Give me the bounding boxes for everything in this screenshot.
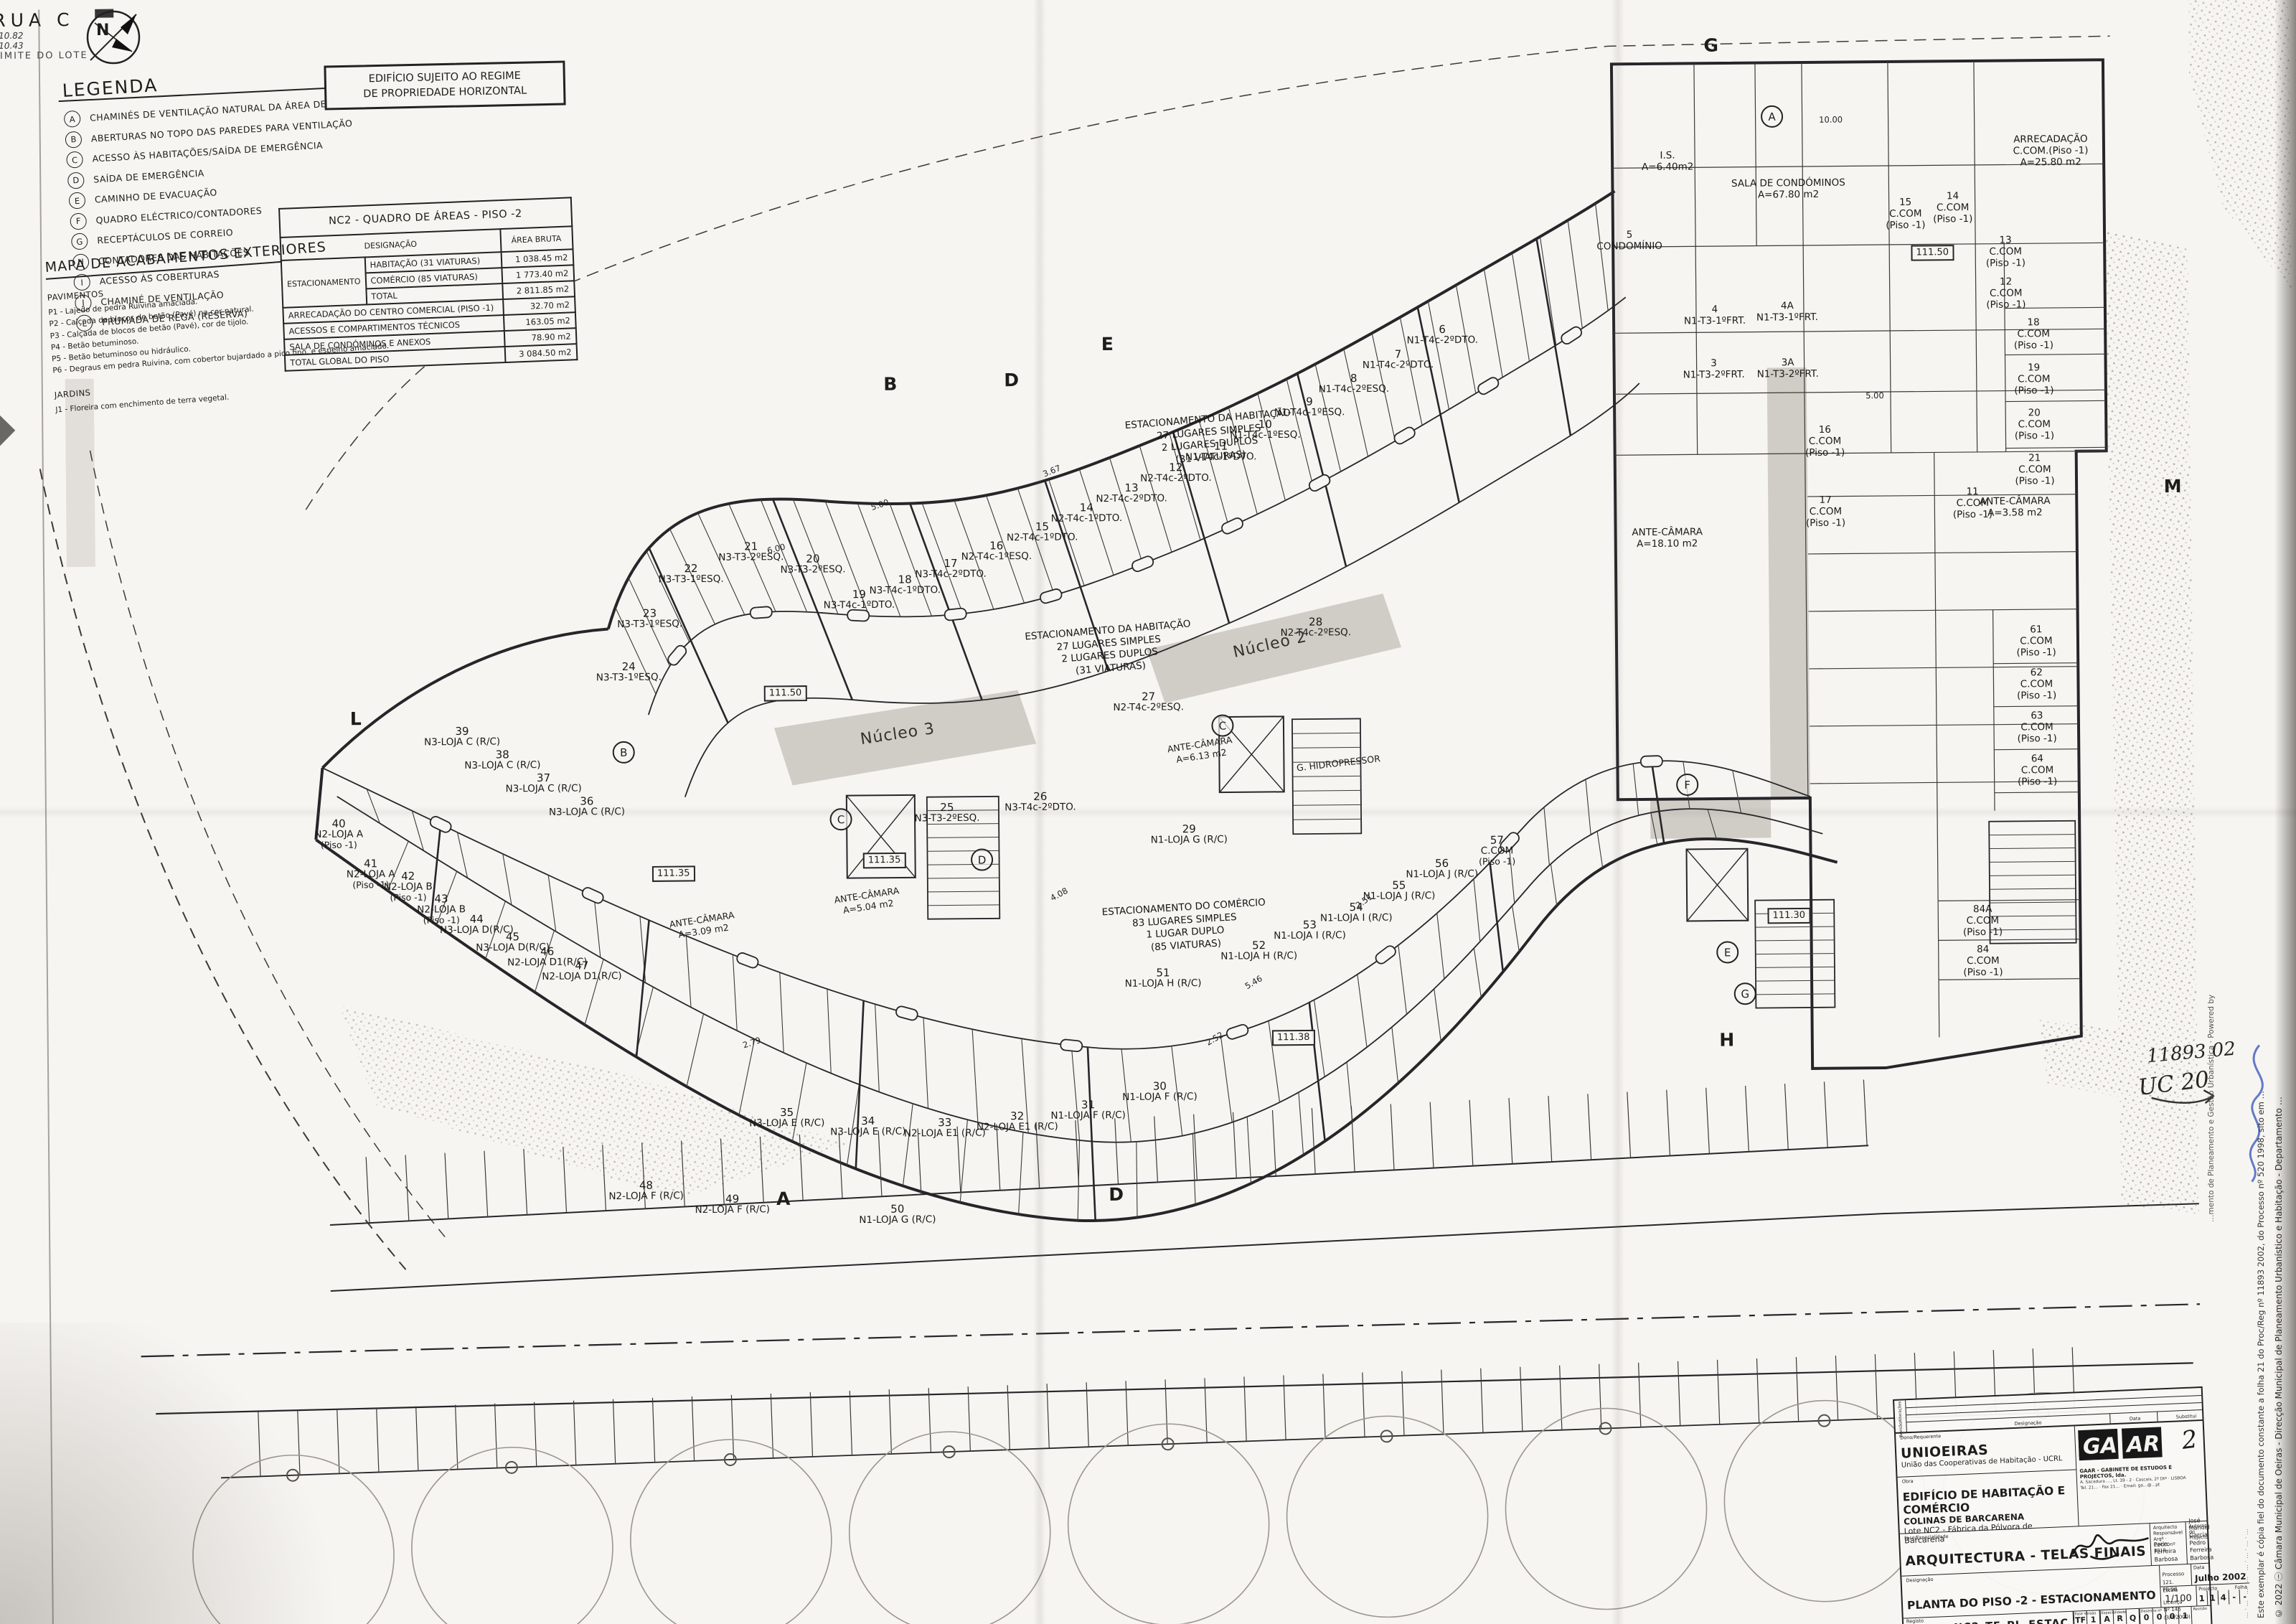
space-label: 6N1-T4c-2ºDTO. [1406, 324, 1478, 347]
space-code: N1-LOJA J (R/C) [1363, 891, 1436, 901]
room-label: 19C.COM(Piso -1) [2014, 362, 2054, 397]
scale-value: 1/100 [2165, 1593, 2192, 1605]
authors-cell: Autores do Projecto José Manuel Garcia P… [2185, 1521, 2212, 1564]
space-code: N2-LOJA F (R/C) [608, 1191, 684, 1201]
room-label-line: C.COM [2017, 679, 2056, 690]
revision-cell: Revisão [2191, 1606, 2211, 1624]
responsible-signature [2068, 1525, 2155, 1564]
space-label: 38N3-LOJA C (R/C) [464, 748, 540, 771]
responsible-label: Arquitecto Responsável [2153, 1524, 2183, 1536]
space-code: N1-T4c-2ºDTO. [1363, 360, 1434, 370]
room-label-line: C.COM [1986, 246, 2026, 258]
room-label-line: 63 [2017, 710, 2056, 722]
room-label-line: 14 [1933, 191, 1972, 202]
title-block: Alterações Revisão Designação Data Subst… [1893, 1386, 2213, 1624]
space-label: 29N1-LOJA G (R/C) [1151, 823, 1228, 846]
room-label: ARRECADAÇÃOC.COM.(Piso -1)A=25.80 m2 [2013, 134, 2088, 169]
room-label: 84C.COM(Piso -1) [1963, 944, 2003, 979]
room-label-line: 12 [1986, 276, 2026, 288]
space-code: N3-T3-1ºESQ. [596, 672, 662, 683]
room-label: 18C.COM(Piso -1) [2013, 317, 2053, 352]
room-label: 5CONDOMÍNIO [1596, 230, 1662, 253]
hydropressor-label: G. HIDROPRESSOR [1296, 753, 1380, 774]
date-value: Julho 2002 [2195, 1572, 2246, 1584]
space-code: N1-T4c-2ºDTO. [1407, 335, 1479, 346]
space-label: 48N2-LOJA F (R/C) [608, 1179, 684, 1202]
space-code: N3-T4c-1ºDTO. [870, 585, 941, 596]
room-label-line: (Piso -1) [1986, 299, 2026, 311]
room-label-line: C.COM [2015, 419, 2054, 431]
areas-group-label: ESTACIONAMENTO [281, 257, 367, 307]
author-2: Pedro Ferreira Barbosa [2189, 1539, 2210, 1562]
architect-logo-cell: GA AR 2 GAAR - GABINETE DE ESTUDOS E PRO… [2074, 1421, 2207, 1526]
edge-copyright-line3: … · … · … · … · … · … · … · … [2243, 1216, 2250, 1618]
room-label-line: C.COM [1963, 916, 2003, 927]
room-label-line: C.COM [2018, 765, 2057, 776]
room-label-line: N1-T3-1ºFRT. [1756, 312, 1818, 324]
legend-key-icon: B [65, 131, 82, 148]
room-label: 20C.COM(Piso -1) [2015, 408, 2055, 442]
room-label-line: 20 [2015, 408, 2054, 419]
grid-reference-letter: D [1109, 1184, 1124, 1205]
space-code: N1-LOJA F (R/C) [1122, 1092, 1198, 1102]
room-label-line: (Piso -1) [1886, 220, 1925, 231]
room-label-line: (Piso -1) [2016, 647, 2056, 659]
room-label-line: C.COM [2015, 464, 2054, 476]
grid-reference-letter: M [2164, 476, 2182, 497]
room-label: 17C.COM(Piso -1) [1806, 495, 1846, 530]
legend-item-label: SAÍDA DE EMERGÊNCIA [93, 167, 204, 184]
room-label-line: A=25.80 m2 [2013, 156, 2089, 169]
space-label: 27N2-T4c-2ºESQ. [1113, 690, 1184, 713]
room-label: 12C.COM(Piso -1) [1986, 276, 2026, 311]
room-label: 61C.COM(Piso -1) [2016, 624, 2056, 659]
project-number-label: Projecto [2198, 1585, 2218, 1592]
space-code: N3-LOJA C (R/C) [464, 760, 540, 771]
legend-item-label: QUADRO ELÉCTRICO/CONTADORES [95, 205, 262, 225]
space-floor: (Piso -1) [1479, 856, 1515, 866]
room-label-line: C.COM [1963, 956, 2003, 967]
space-code: N1-LOJA I (R/C) [1274, 930, 1346, 941]
room-label: 62C.COM(Piso -1) [2017, 667, 2057, 702]
space-number: 41 [347, 858, 395, 870]
room-label-line: (Piso -1) [2017, 690, 2056, 702]
room-label-line: A=18.10 m2 [1632, 538, 1703, 550]
core-name-label: Núcleo 2 [1231, 628, 1309, 662]
legend-symbol-marker: F [1676, 774, 1698, 796]
svg-text:GA: GA [2082, 1433, 2117, 1460]
project-digit: - [2228, 1590, 2239, 1605]
room-label-line: (Piso -1) [1986, 258, 2026, 269]
room-label: 84AC.COM(Piso -1) [1963, 904, 2003, 939]
space-label: 56N1-LOJA J (R/C) [1406, 858, 1478, 881]
room-label-line: (Piso -1) [2014, 385, 2053, 397]
grid-reference-letter: G [1703, 35, 1718, 56]
space-code: N1-LOJA H (R/C) [1125, 978, 1202, 990]
grid-reference-letter: B [883, 374, 897, 395]
scale-cell: Escala 1/100 [2160, 1586, 2196, 1607]
elevation-box: 111.38 [1272, 1030, 1315, 1046]
dimension-text: 5.00 [870, 497, 890, 512]
space-code: N3-T3-1ºESQ. [659, 574, 724, 585]
space-number: 42 [384, 870, 433, 883]
parking-count-note: ESTACIONAMENTO DA HABITAÇÃO27 LUGARES SI… [1025, 618, 1194, 681]
room-label-line: 17 [1806, 495, 1845, 507]
dimension-text: 5.46 [1243, 973, 1264, 991]
space-label: 20N3-T3-2ºESQ. [780, 553, 845, 576]
space-label: 57C.COM(Piso -1) [1479, 834, 1515, 866]
space-code: N2-LOJA E1 (R/C) [904, 1128, 986, 1140]
responsible-cell: Arquitecto Responsável Arqº · E.M.O. nº … [2150, 1522, 2187, 1565]
room-label-line: 13 [1985, 235, 2025, 246]
regime-note: EDIFÍCIO SUJEITO AO REGIME DE PROPRIEDAD… [324, 60, 565, 110]
room-label: ANTE-CÂMARAA=18.10 m2 [1632, 527, 1703, 550]
room-label: 21C.COM(Piso -1) [2015, 453, 2055, 487]
core-name-label: Núcleo 3 [859, 720, 936, 748]
project-number-cell: Projecto Folha 114-- [2196, 1583, 2250, 1605]
room-label-line: C.COM [1886, 209, 1925, 220]
north-label: N [96, 22, 109, 39]
grid-reference-letter: A [776, 1188, 791, 1209]
elevation-box: 111.35 [652, 865, 695, 882]
space-label: 31N1-LOJA F (R/C) [1050, 1099, 1126, 1122]
room-label-line: C.COM [1986, 288, 2026, 299]
room-label-line: C.COM [2014, 329, 2053, 340]
svg-text:AR: AR [2125, 1431, 2160, 1458]
space-code: N1-LOJA G (R/C) [1151, 835, 1228, 846]
space-code: N3-LOJA E (R/C) [830, 1127, 905, 1137]
legend-key-icon: C [66, 151, 83, 168]
edge-department-text: …mento de Planeamento e Gestão Urbanísti… [2207, 914, 2216, 1222]
space-code: C.COM [1479, 846, 1515, 857]
legend-symbol-marker: G [1734, 982, 1756, 1005]
room-label: 63C.COM(Piso -1) [2017, 710, 2057, 745]
drawing-number-cells: Desenho nº0001 [2139, 1607, 2192, 1624]
drawing-sheet: 24N3-T3-1ºESQ.23N3-T3-1ºESQ.22N3-T3-1ºES… [0, 0, 2296, 1624]
revision-designacao: Designação [2014, 1419, 2041, 1427]
room-label: 15C.COM(Piso -1) [1886, 197, 1926, 232]
room-label-line: N1-T3-1ºFRT. [1684, 316, 1746, 328]
cell-group-label: Fase Versão [2075, 1611, 2097, 1616]
revision-data: Data [2130, 1416, 2141, 1422]
legend-key-icon: F [70, 212, 87, 230]
titleblock-digit: 0 [2165, 1607, 2178, 1624]
room-label-line: (Piso -1) [1963, 967, 2003, 979]
space-code: N1-LOJA I (R/C) [1320, 913, 1393, 924]
legend-key-icon: A [64, 111, 81, 128]
phase-version-cells: Fase VersãoTF1 [2073, 1610, 2100, 1624]
date-label: Data [2193, 1563, 2246, 1571]
room-label: I.S.A=6.40m2 [1642, 150, 1694, 173]
grid-reference-letter: D [1004, 370, 1019, 390]
scan-corner-shadow [0, 1323, 373, 1624]
space-code: N1-LOJA J (R/C) [1406, 869, 1478, 880]
room-label: SALA DE CONDÓMINOSA=67.80 m2 [1731, 178, 1845, 202]
areas-table: NC2 - QUADRO DE ÁREAS - PISO -2 DESIGNAÇ… [278, 197, 578, 372]
dimension-text: 2.79 [741, 1035, 762, 1050]
elevation-box: 111.50 [1911, 245, 1954, 261]
date-cell: Data Julho 2002 [2191, 1562, 2249, 1585]
room-label-line: (Piso -1) [2015, 476, 2054, 487]
room-label: 3AN1-T3-2ºFRT. [1756, 357, 1818, 381]
legend-key-icon: G [71, 233, 88, 250]
edge-copyright-line2: Este exemplar é cópia fiel do documento … [2256, 1216, 2266, 1618]
parking-count-note: ESTACIONAMENTO DA HABITAÇÃO27 LUGARES SI… [1124, 407, 1294, 470]
space-number: 57 [1479, 834, 1515, 846]
grid-reference-letter: E [1101, 334, 1114, 355]
space-code: N2-T4c-1ºDTO. [1051, 513, 1123, 524]
space-code: N1-T4c-2ºESQ. [1319, 384, 1390, 395]
gaar-logo: GA AR [2078, 1425, 2165, 1463]
room-label-line: (Piso -1) [2018, 776, 2057, 788]
space-code: N2-T4c-2ºESQ. [1113, 702, 1184, 713]
legend-symbol-marker: E [1716, 941, 1739, 963]
room-label-line: C.COM [2014, 374, 2053, 385]
space-code: N2-LOJA F (R/C) [695, 1204, 771, 1215]
room-label-line: 21 [2015, 453, 2054, 464]
dimension-text: 5.00 [1865, 390, 1884, 400]
elevation-box: 111.35 [863, 853, 906, 869]
space-label: 30N1-LOJA F (R/C) [1122, 1080, 1198, 1103]
space-label: 39N3-LOJA C (R/C) [424, 725, 500, 748]
room-label: 64C.COM(Piso -1) [2018, 754, 2058, 788]
room-label: 13C.COM(Piso -1) [1985, 235, 2026, 269]
room-label-line: (Piso -1) [2014, 340, 2053, 352]
room-label-line: A=3.58 m2 [1980, 507, 2051, 520]
room-label: 4AN1-T3-1ºFRT. [1756, 301, 1818, 324]
room-label-line: 84 [1963, 944, 2003, 956]
space-label: 50N1-LOJA G (R/C) [859, 1203, 936, 1226]
revision-label: Revisão [2193, 1607, 2207, 1612]
space-label: 40N2-LOJA A(Piso -1) [314, 817, 363, 850]
grid-reference-letter: L [350, 708, 362, 729]
space-label: 49N2-LOJA F (R/C) [695, 1193, 770, 1216]
author-1: José Manuel Garcia [2188, 1516, 2209, 1539]
room-label-line: (Piso -1) [1933, 214, 1972, 225]
revision-substitui: Substitui [2176, 1413, 2197, 1419]
room-label-line: (Piso -1) [1963, 927, 2003, 939]
space-label: 14N2-T4c-1ºDTO. [1051, 502, 1123, 525]
project-cell: Obra EDIFÍCIO DE HABITAÇÃO E COMÉRCIO CO… [1898, 1470, 2079, 1533]
space-label: 35N3-LOJA E (R/C) [749, 1107, 824, 1130]
room-label-line: C.COM [1933, 202, 1972, 214]
room-label-line: 64 [2018, 754, 2057, 765]
space-label: 51N1-LOJA H (R/C) [1124, 967, 1201, 990]
project-digit: 1 [2206, 1590, 2218, 1605]
parking-count-note: ESTACIONAMENTO DO COMÉRCIO83 LUGARES SIM… [1101, 897, 1268, 957]
titleblock-digit: Q [2126, 1609, 2140, 1624]
space-code: N2-LOJA A [314, 830, 363, 840]
antechamber-label: ANTE-CÂMARAA=6.13 m2 [1167, 734, 1235, 766]
room-label: 14C.COM(Piso -1) [1933, 191, 1973, 225]
legend-symbol-marker: B [613, 741, 635, 764]
areas-row-value: 3 084.50 m2 [504, 344, 577, 362]
antechamber-label: ANTE-CÂMARAA=5.04 m2 [834, 885, 902, 916]
space-label: 34N3-LOJA E (R/C) [830, 1115, 905, 1138]
space-code: N2-LOJA B [384, 882, 433, 893]
space-label: 23N3-T3-1ºESQ. [617, 607, 682, 630]
sheet-number: 2 [2180, 1424, 2200, 1455]
room-label-line: 84A [1963, 904, 2003, 916]
space-code: N2-LOJA D1(R/C) [542, 971, 621, 982]
room-label-line: CONDOMÍNIO [1596, 241, 1662, 253]
speciality-cells: EspecialidadeARQ [2099, 1609, 2140, 1624]
space-code: N1-LOJA F (R/C) [1050, 1110, 1126, 1121]
drawing-title: PLANTA DO PISO -2 - ESTACIONAMENTO [1907, 1589, 2156, 1613]
legend-item-label: RECEPTÁCULOS DE CORREIO [97, 227, 234, 245]
space-code: N3-T3-1ºESQ. [617, 619, 682, 629]
antechamber-label: ANTE-CÂMARAA=3.09 m2 [669, 909, 737, 941]
grid-reference-letter: H [1719, 1029, 1734, 1050]
room-label: ANTE-CÂMARAA=3.58 m2 [1980, 496, 2051, 520]
space-code: N3-T4c-2ºDTO. [915, 569, 987, 580]
space-number: 43 [417, 893, 466, 905]
areas-col2: ÁREA BRUTA [500, 226, 573, 252]
room-label-line: (Piso -1) [1805, 447, 1845, 459]
room-label-line: 61 [2016, 624, 2056, 636]
titleblock-digit: 1 [2178, 1607, 2191, 1624]
room-label-line: (Piso -1) [2018, 733, 2057, 745]
elevation-box: 111.50 [764, 685, 807, 702]
space-code: N2-T4c-1ºESQ. [961, 551, 1032, 562]
room-label: 16C.COM(Piso -1) [1805, 425, 1845, 459]
room-label-line: C.COM [2017, 722, 2056, 733]
room-label-line: N1-T3-2ºFRT. [1757, 369, 1819, 381]
room-label-line: A=6.40m2 [1642, 161, 1693, 174]
room-label-line: C.COM [1805, 436, 1845, 448]
space-floor: (Piso -1) [314, 840, 363, 850]
space-code: N3-T4c-1ºDTO. [824, 600, 895, 611]
space-label: 24N3-T3-1ºESQ. [596, 661, 662, 684]
room-label-line: (Piso -1) [2015, 431, 2054, 442]
room-label-line: 15 [1886, 197, 1925, 209]
room-label: 3N1-T3-2ºFRT. [1683, 358, 1744, 382]
legend-symbol-marker: C [1211, 714, 1233, 736]
scan-edge-shadow [2274, 0, 2296, 1624]
revision-side-label: Alterações [1898, 1401, 1903, 1422]
elevation-box: 111.30 [1767, 908, 1810, 924]
room-label-line: 16 [1805, 425, 1845, 436]
legend-key-icon: E [68, 192, 85, 209]
process-cell: Processo 121. PB/98 Licença Nº 146 (3/3/… [2160, 1564, 2191, 1587]
dimension-text: 2.52 [1204, 1030, 1225, 1048]
space-code: N1-LOJA G (R/C) [859, 1214, 936, 1226]
legend-symbol-marker: A [1761, 105, 1783, 128]
space-label: 8N1-T4c-2ºESQ. [1318, 372, 1389, 395]
room-label-line: (Piso -1) [1806, 517, 1845, 529]
responsible-name: Pedro Ferreira Barbosa [2154, 1540, 2186, 1564]
cell-group-label: Desenho nº [2141, 1609, 2162, 1614]
room-label-line: A=67.80 m2 [1731, 189, 1845, 201]
dimension-text: 4.08 [1048, 886, 1069, 903]
dimension-text: 10.00 [1819, 115, 1843, 125]
space-code: N3-LOJA C (R/C) [424, 737, 500, 748]
legend-item-label: CAMINHO DE EVACUAÇÃO [94, 187, 217, 205]
project-digit: 1 [2196, 1591, 2207, 1606]
space-code: N3-T3-2ºESQ. [780, 564, 845, 575]
exterior-finishes: MAPA DE ACABAMENTOS EXTERIORES PAVIMENTO… [44, 243, 292, 416]
space-code: N2-T4c-2ºDTO. [1140, 473, 1212, 484]
room-label-line: C.COM [1806, 507, 1845, 518]
room-label-line: 62 [2017, 667, 2056, 679]
project-digit: 4 [2217, 1590, 2229, 1605]
space-code: N3-LOJA E (R/C) [749, 1118, 824, 1129]
room-label-line: C.COM [2016, 636, 2056, 647]
room-label-line: 19 [2014, 362, 2053, 374]
space-number: 40 [314, 817, 363, 830]
space-label: 22N3-T3-1ºESQ. [658, 563, 723, 586]
room-label-line: 18 [2013, 317, 2053, 329]
room-label-line: I.S. [1642, 150, 1693, 162]
space-code: N1-LOJA H (R/C) [1220, 951, 1297, 962]
room-label: 4N1-T3-1ºFRT. [1684, 304, 1746, 328]
legend-symbol-marker: D [971, 848, 993, 870]
space-label: 7N1-T4c-2ºDTO. [1363, 348, 1434, 371]
space-code: N3-LOJA C (R/C) [506, 784, 582, 795]
legend-key-icon: D [67, 172, 85, 189]
north-arrow: N [79, 3, 148, 72]
fold-crease-horizontal [0, 807, 2296, 818]
client-cell: Dono/Requerente UNIOEIRAS União das Coop… [1896, 1426, 2076, 1477]
space-label: 37N3-LOJA C (R/C) [505, 772, 581, 795]
space-code: N2-T4c-2ºDTO. [1096, 494, 1167, 504]
room-label-line: N1-T3-2ºFRT. [1683, 370, 1745, 382]
space-label: 13N2-T4c-2ºDTO. [1096, 482, 1167, 504]
space-label: 33N2-LOJA E1 (R/C) [904, 1117, 986, 1140]
space-label: 47N2-LOJA D1(R/C) [542, 959, 622, 982]
